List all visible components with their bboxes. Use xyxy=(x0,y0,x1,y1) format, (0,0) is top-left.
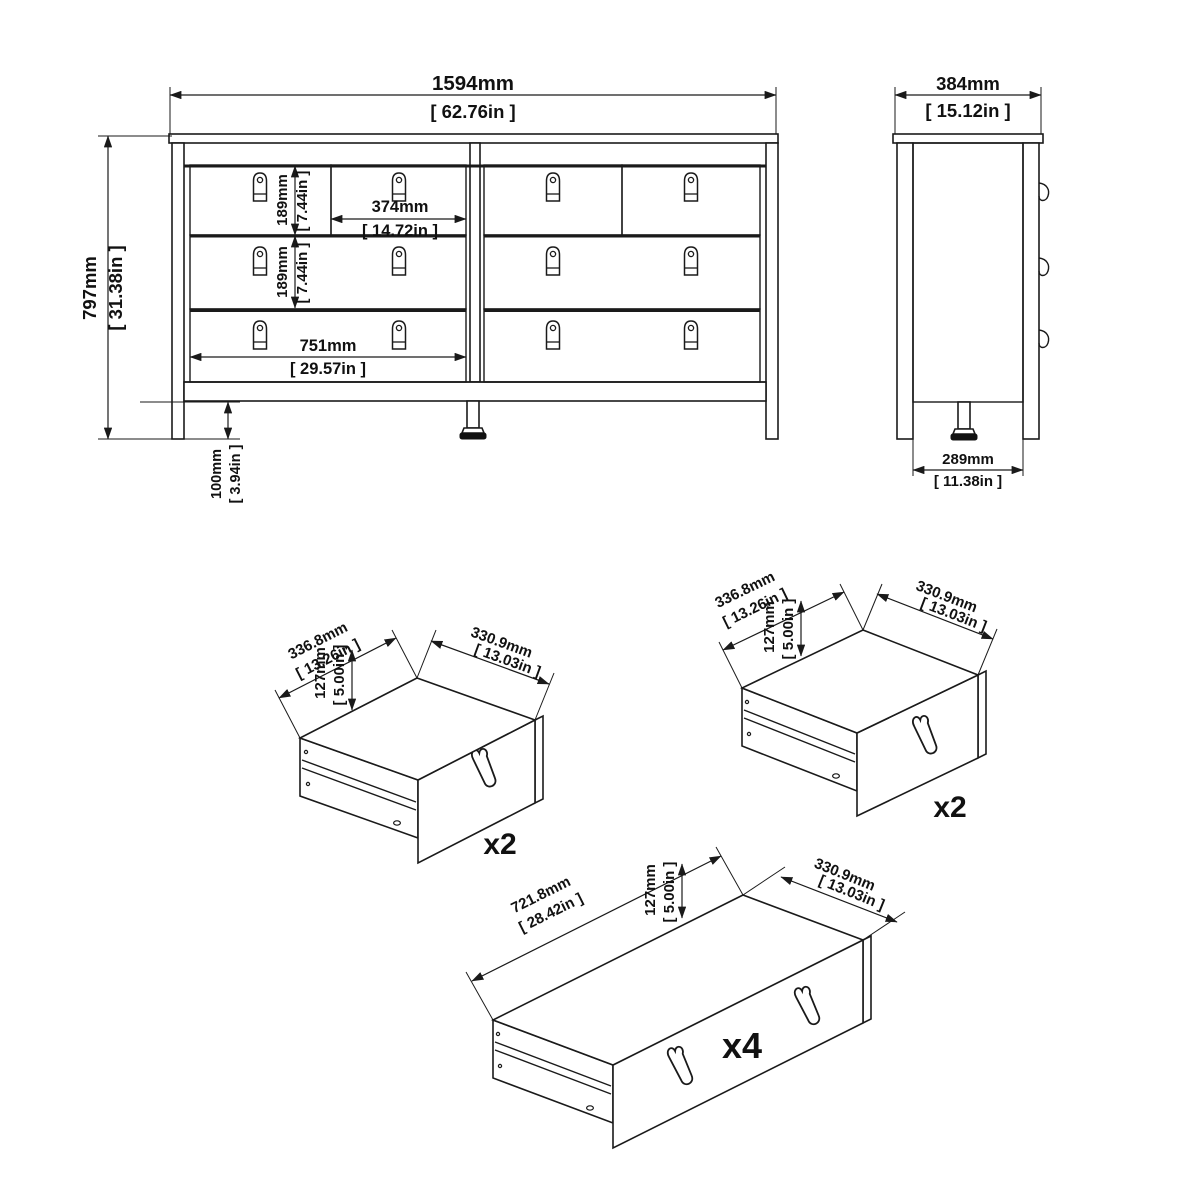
front-row2-mm-label: 189mm xyxy=(274,246,291,298)
side-front-leg xyxy=(897,143,913,439)
front-left-leg xyxy=(172,143,184,439)
front-drawer-width-in-label: [ 29.57in ] xyxy=(290,360,366,378)
side-pull-hook-icon xyxy=(1039,258,1049,276)
side-pull-hook-icon xyxy=(1039,330,1049,348)
drawer-front-edge xyxy=(978,671,986,758)
drawer-pull-icon xyxy=(547,247,560,275)
front-row1-mm-label: 189mm xyxy=(274,174,291,226)
drawer3-height-mm-label: 127mm xyxy=(642,864,659,916)
drawer-pull-icon xyxy=(393,321,406,349)
drawer-small-left-drawing: 336.8mm [ 13.26in ] 127mm [ 5.00in ] 330… xyxy=(275,619,554,863)
drawer1-height-in-label: [ 5.00in ] xyxy=(331,645,348,706)
side-view-drawing: 384mm [ 15.12in ] 289mm [ 11.38in ] xyxy=(893,73,1049,490)
side-pull-hook-icon xyxy=(1039,183,1049,201)
side-back-leg xyxy=(1023,143,1039,439)
side-depth-mm-label: 384mm xyxy=(936,73,1000,94)
drawer-pull-icon xyxy=(685,321,698,349)
front-view-drawing: 1594mm [ 62.76in ] 797mm [ 31.38in ] 189… xyxy=(79,72,778,503)
drawer-large-drawing: 721.8mm [ 28.42in ] 127mm [ 5.00in ] 330… xyxy=(466,847,905,1148)
front-half-width-in-label: [ 14.72in ] xyxy=(362,222,438,240)
drawer-pull-icon xyxy=(547,321,560,349)
side-foot xyxy=(951,402,977,440)
drawer-pull-icon xyxy=(393,247,406,275)
front-leg-mm-label: 100mm xyxy=(209,449,225,499)
drawer-pull-icon xyxy=(547,173,560,201)
drawer2-quantity-label: x2 xyxy=(933,791,966,824)
drawer1-height-mm-label: 127mm xyxy=(312,647,329,699)
drawer3-height-in-label: [ 5.00in ] xyxy=(661,862,678,923)
side-base-mm-label: 289mm xyxy=(942,451,994,468)
front-drawer-width-mm-label: 751mm xyxy=(300,337,357,355)
drawer-pull-icon xyxy=(254,321,267,349)
drawer-front-edge xyxy=(535,716,543,803)
front-width-in-label: [ 62.76in ] xyxy=(430,101,515,122)
front-bottom-rail xyxy=(184,382,766,401)
technical-drawing-page: 1594mm [ 62.76in ] 797mm [ 31.38in ] 189… xyxy=(0,0,1200,1200)
drawer3-quantity-label: x4 xyxy=(722,1025,762,1066)
dresser-dimension-diagram: 1594mm [ 62.76in ] 797mm [ 31.38in ] 189… xyxy=(0,0,1200,1200)
front-right-leg xyxy=(766,143,778,439)
front-center-divider xyxy=(470,143,480,382)
front-half-width-mm-label: 374mm xyxy=(372,198,429,216)
front-height-mm-label: 797mm xyxy=(79,256,100,320)
drawer-pull-icon xyxy=(685,247,698,275)
drawer-small-right-drawing: 336.8mm [ 13.26in ] 127mm [ 5.00in ] 330… xyxy=(712,568,997,824)
side-top-panel xyxy=(893,134,1043,143)
side-pull-hooks xyxy=(1039,183,1049,348)
drawer-pull-icon xyxy=(254,247,267,275)
front-center-foot xyxy=(460,401,486,439)
drawer-pull-icon xyxy=(393,173,406,201)
drawer1-quantity-label: x2 xyxy=(483,828,516,861)
front-row2-in-label: [ 7.44in ] xyxy=(294,243,311,304)
front-row1-in-label: [ 7.44in ] xyxy=(294,171,311,232)
drawer-pull-icon xyxy=(685,173,698,201)
front-leg-in-label: [ 3.94in ] xyxy=(228,444,244,503)
side-base-in-label: [ 11.38in ] xyxy=(934,473,1002,490)
front-height-in-label: [ 31.38in ] xyxy=(105,245,126,330)
drawer-pull-icon xyxy=(254,173,267,201)
drawer-front-edge xyxy=(863,936,871,1023)
drawer2-height-mm-label: 127mm xyxy=(761,601,778,653)
side-depth-in-label: [ 15.12in ] xyxy=(925,100,1010,121)
front-top-panel xyxy=(169,134,778,143)
front-width-mm-label: 1594mm xyxy=(432,72,514,95)
side-body xyxy=(913,143,1023,402)
drawer2-height-in-label: [ 5.00in ] xyxy=(780,599,797,660)
